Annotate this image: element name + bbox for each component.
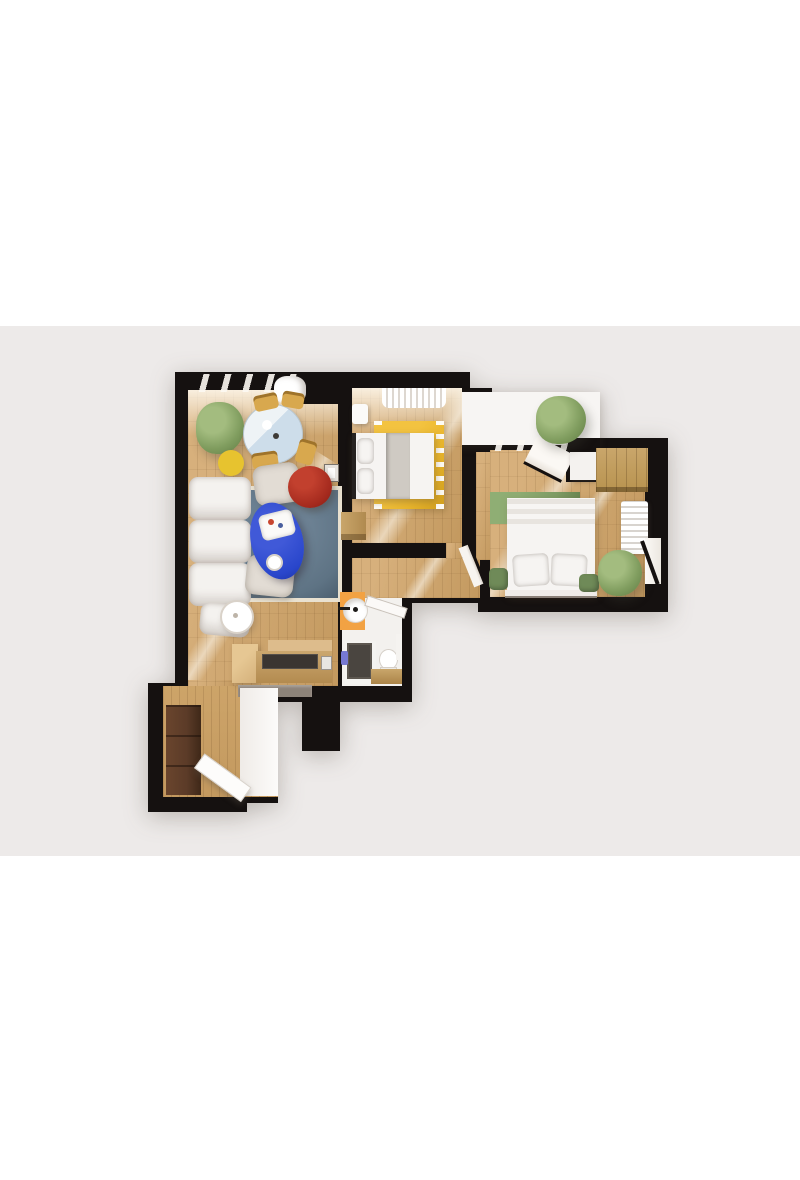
sunlight-streak — [384, 558, 459, 598]
basin-faucet — [338, 607, 350, 610]
bed-pillow — [512, 553, 550, 587]
green-pouf — [489, 568, 508, 590]
shower-tray — [347, 643, 372, 679]
bedroom1-dresser — [341, 512, 366, 540]
wall-corner-living-ne — [302, 372, 352, 404]
basin-drain — [353, 607, 358, 612]
corridor-floor — [352, 558, 480, 598]
tray-item — [278, 523, 283, 528]
entry-lit-floor — [240, 688, 278, 796]
floor-plan-screenshot: { "image": { "type": "3d-floor-plan-top-… — [0, 0, 800, 1180]
bathroom-counter — [371, 669, 402, 684]
bedroom1-nightstand — [352, 404, 368, 424]
blue-towel — [341, 651, 348, 665]
yellow-side-table — [218, 450, 244, 476]
sofa-module — [189, 477, 251, 520]
bathroom-shelf — [396, 634, 402, 660]
table-decor-plate — [262, 420, 272, 430]
bed-pillow — [357, 438, 374, 464]
bed-pillow — [357, 468, 374, 494]
bedroom1-blanket — [386, 433, 410, 499]
bedroom2-folded-sheet — [507, 498, 595, 524]
sofa-module — [189, 563, 251, 606]
red-pouf — [288, 466, 332, 508]
kitchen-sink — [321, 656, 332, 670]
wardrobe-white-box — [570, 452, 596, 480]
bedroom2-wardrobe — [596, 448, 648, 492]
kitchen-counter-left — [232, 644, 258, 683]
entry-wardrobe — [166, 705, 201, 795]
wall-entry-bottom — [148, 795, 247, 812]
green-pouf — [579, 574, 599, 592]
coffee-cup-table — [266, 554, 283, 571]
bedroom1-curtain — [382, 388, 446, 408]
floor-lamp-center — [233, 613, 238, 618]
bedroom1-rug-fringe — [436, 421, 444, 509]
table-decor-bowl — [273, 433, 279, 439]
kitchen-cooktop — [262, 654, 318, 669]
floor-plan — [0, 0, 800, 1180]
tray-item — [268, 519, 274, 525]
sofa-module — [189, 520, 251, 563]
